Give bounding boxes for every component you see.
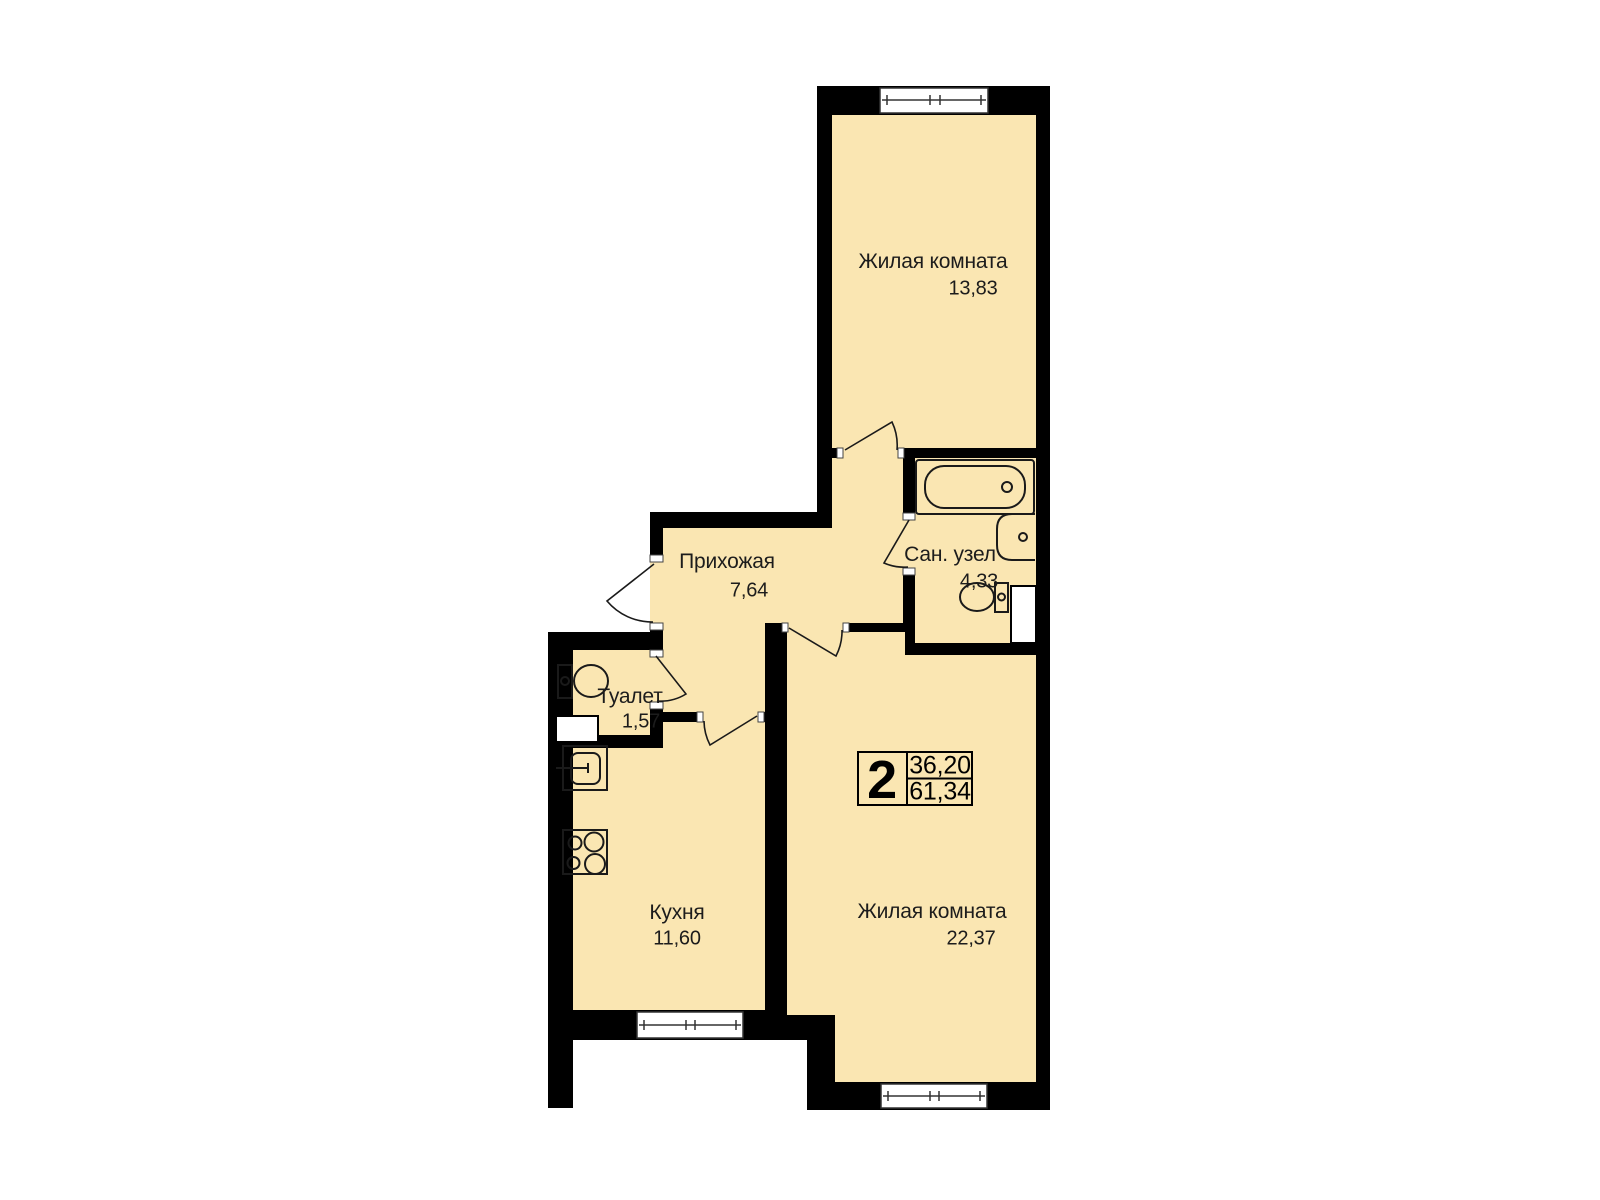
room-label-wc: Туалет — [597, 685, 662, 709]
room-area-bathroom: 4,33 — [960, 571, 998, 594]
room-area-wc: 1,57 — [622, 711, 660, 734]
window-living2 — [881, 1084, 987, 1108]
room-area-living1: 13,83 — [948, 278, 997, 301]
room-area-kitchen: 11,60 — [653, 928, 701, 951]
summary-total-area: 61,34 — [909, 778, 971, 807]
summary-living-area: 36,20 — [909, 752, 971, 781]
room-label-bathroom: Сан. узел — [904, 543, 996, 567]
vent-shaft-wc — [556, 716, 598, 742]
door-entrance — [607, 564, 654, 622]
room-area-hallway: 7,64 — [730, 580, 768, 603]
window-kitchen — [637, 1012, 743, 1038]
vent-shaft-bathroom — [1011, 586, 1036, 643]
floor-plan: Жилая комната 13,83 Прихожая 7,64 Сан. у… — [0, 0, 1600, 1200]
summary-rooms-count: 2 — [867, 749, 897, 811]
room-label-hallway: Прихожая — [679, 550, 775, 574]
room-label-living2: Жилая комната — [857, 900, 1006, 924]
room-label-kitchen: Кухня — [649, 901, 704, 925]
floor-living2 — [787, 632, 1036, 1082]
window-living1 — [880, 88, 988, 113]
room-area-living2: 22,37 — [946, 928, 995, 951]
floor-living1 — [832, 115, 1036, 448]
floor-kitchen — [573, 722, 765, 1010]
room-label-living1: Жилая комната — [858, 250, 1007, 274]
floor-plan-drawing — [0, 0, 1600, 1200]
